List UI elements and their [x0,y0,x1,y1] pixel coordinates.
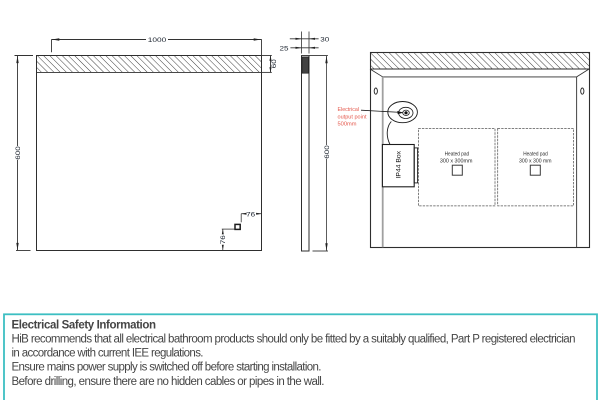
svg-text:IP44 Box: IP44 Box [396,150,403,178]
svg-text:500mm: 500mm [338,122,357,128]
svg-text:300 x 300 mm: 300 x 300 mm [519,158,552,164]
svg-text:Heated pad: Heated pad [523,151,548,157]
svg-text:60: 60 [271,59,278,68]
svg-text:Heated pad: Heated pad [445,151,470,157]
svg-text:76: 76 [246,211,255,218]
svg-text:output point: output point [338,114,368,120]
svg-text:76: 76 [220,235,227,244]
svg-text:30: 30 [320,36,329,43]
svg-text:in accordance with current IEE: in accordance with current IEE regulatio… [12,347,204,359]
svg-text:25: 25 [280,45,289,52]
svg-text:1000: 1000 [148,37,167,44]
svg-text:Ensure mains power supply is s: Ensure mains power supply is switched of… [12,362,322,374]
svg-text:Before drilling, ensure there: Before drilling, ensure there are no hid… [12,376,325,388]
svg-text:300 x 300mm: 300 x 300mm [440,158,473,164]
svg-text:Electrical: Electrical [338,107,360,113]
svg-text:HiB recommends that all electr: HiB recommends that all electrical bathr… [12,333,576,345]
svg-text:600: 600 [324,145,331,159]
svg-text:600: 600 [15,146,22,160]
svg-text:Electrical Safety Information: Electrical Safety Information [12,320,157,332]
